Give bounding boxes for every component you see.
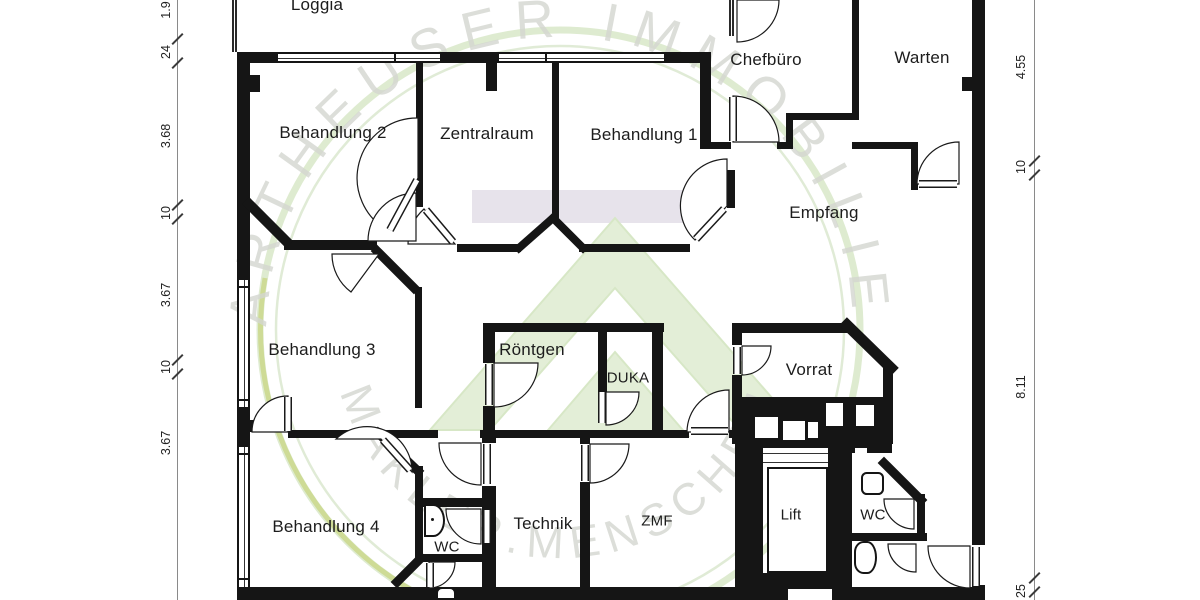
dimension-label: 10 xyxy=(1014,160,1028,174)
room-label-zmf: ZMF xyxy=(641,513,672,530)
dimension-line-right xyxy=(1034,0,1035,600)
room-label-chefbuero: Chefbüro xyxy=(730,50,802,70)
door-corridor-empfang xyxy=(687,390,729,432)
dimension-label: 10 xyxy=(159,206,173,220)
dimension-label: 24 xyxy=(159,45,173,59)
door-vorrat xyxy=(742,346,771,375)
dimension-label: 4.55 xyxy=(1014,55,1028,79)
door-warten xyxy=(917,142,959,184)
room-label-behandlung4: Behandlung 4 xyxy=(272,517,379,537)
dimension-label: 3.67 xyxy=(159,283,173,307)
room-label-duka: DUKA xyxy=(607,370,649,387)
dimension-label: 8.11 xyxy=(1014,375,1028,398)
dimension-label: 25 xyxy=(1014,584,1028,598)
dimension-label: 3.68 xyxy=(159,124,173,148)
door-zmf xyxy=(590,444,629,483)
door-loggia xyxy=(737,0,779,42)
room-label-roentgen: Röntgen xyxy=(499,340,565,360)
dimension-line-left xyxy=(177,0,178,600)
room-label-behandlung2: Behandlung 2 xyxy=(279,123,386,143)
room-label-empfang: Empfang xyxy=(789,203,858,223)
room-label-wc-left: WC xyxy=(434,539,459,556)
door-behandlung3-bottom xyxy=(252,396,288,432)
room-label-warten: Warten xyxy=(894,48,949,68)
toilet-icon xyxy=(854,541,877,574)
door-wc-right xyxy=(884,499,914,529)
door-entrance xyxy=(928,546,970,588)
room-label-vorrat: Vorrat xyxy=(786,360,833,380)
dimension-label: 3.67 xyxy=(159,431,173,455)
door-wc-right-lower xyxy=(888,544,916,572)
dimension-label: 10 xyxy=(159,360,173,374)
floorplan-canvas: KARTHEUSER IMMOBILIEN MAKLER.MENSCHEN xyxy=(0,0,1200,600)
door-behandlung3-top xyxy=(332,254,379,292)
doors-and-diagonals xyxy=(0,0,1200,600)
door-roentgen xyxy=(494,363,538,407)
room-label-behandlung3: Behandlung 3 xyxy=(268,340,375,360)
sink-icon xyxy=(861,472,884,495)
door-duka xyxy=(606,392,639,425)
room-label-technik: Technik xyxy=(513,514,572,534)
room-label-wc-right: WC xyxy=(860,507,885,524)
room-label-loggia: Loggia xyxy=(291,0,343,15)
dimension-label: 1.9 xyxy=(159,1,173,18)
sink-drain-icon xyxy=(431,518,434,521)
room-label-lift: Lift xyxy=(781,507,802,524)
door-chefbuero xyxy=(733,96,779,142)
room-label-behandlung1: Behandlung 1 xyxy=(590,125,697,145)
toilet-icon xyxy=(436,587,456,600)
door-technik-vestibule xyxy=(439,443,481,485)
room-label-zentralraum: Zentralraum xyxy=(440,124,534,144)
